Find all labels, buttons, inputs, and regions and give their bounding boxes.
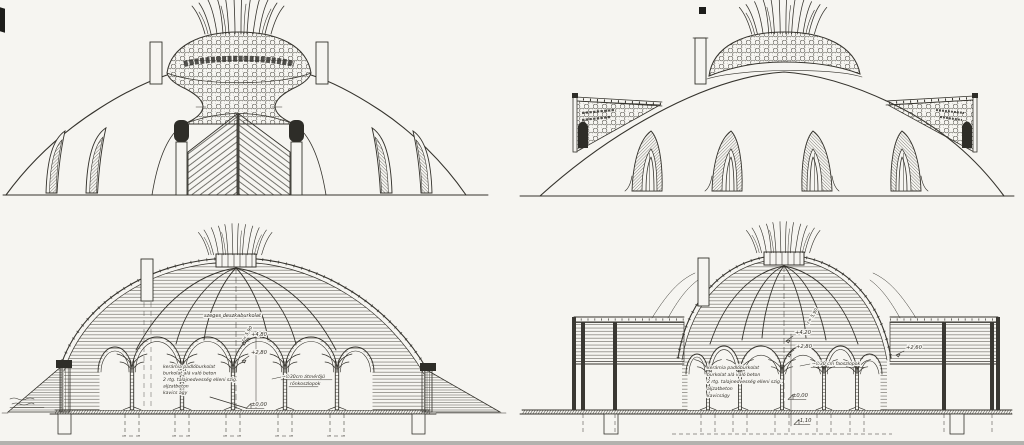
wing-post bbox=[572, 317, 576, 410]
gate-chevron-left bbox=[188, 114, 237, 195]
slope-embankment-right bbox=[425, 369, 500, 412]
svg-text:2 rtg. talajnedvesség elleni s: 2 rtg. talajnedvesség elleni szig. bbox=[163, 376, 237, 383]
wing-post bbox=[990, 322, 994, 410]
foundations bbox=[583, 414, 992, 434]
svg-text:burkolat alá való beton: burkolat alá való beton bbox=[163, 370, 216, 377]
level-label: +2,80 bbox=[251, 350, 268, 356]
svg-text:rönkoszlopok: rönkoszlopok bbox=[290, 381, 321, 387]
foundation-pier bbox=[412, 414, 425, 434]
gable-door bbox=[578, 122, 588, 149]
wing-post bbox=[996, 317, 1000, 410]
scan-speck bbox=[699, 7, 706, 14]
wing-post bbox=[613, 322, 617, 410]
dormer-window bbox=[891, 131, 928, 191]
eye-window bbox=[413, 131, 432, 193]
gate-post-right bbox=[291, 142, 302, 195]
svg-text:kavicságy: kavicságy bbox=[707, 392, 730, 399]
svg-text:aljzatbeton: aljzatbeton bbox=[707, 386, 733, 392]
dormer-window bbox=[802, 131, 839, 191]
gate-post-capital-left bbox=[174, 120, 189, 142]
level-label: +4,20 bbox=[795, 330, 812, 336]
chimney bbox=[141, 259, 153, 301]
scan-speck bbox=[0, 7, 5, 33]
gable-post bbox=[973, 95, 977, 152]
level-label: +4,80 bbox=[251, 332, 268, 338]
level-label: ±0,00 bbox=[792, 393, 809, 399]
panel-longitudinal-section: r= 5,90 +4,20 +2,80 +2,60 ±0,00 -1,10 ke… bbox=[512, 222, 1024, 445]
foundation-pier bbox=[604, 414, 618, 434]
architectural-drawing-sheet: szeges deszkaburkolat r= 5,90 +4,80 +2,8… bbox=[0, 0, 1024, 445]
dormer-windows bbox=[625, 131, 928, 191]
mound-outline bbox=[540, 72, 1004, 196]
panel-side-elevation bbox=[512, 0, 1024, 215]
wing-post bbox=[581, 322, 585, 410]
eave-wall-right bbox=[422, 369, 432, 412]
gate-post-left bbox=[176, 142, 187, 195]
level-label: +2,60 bbox=[906, 345, 923, 351]
svg-text:burkolat alá való beton: burkolat alá való beton bbox=[707, 371, 760, 378]
roof-post-right bbox=[316, 42, 328, 84]
foundations bbox=[58, 414, 425, 436]
chimney bbox=[695, 38, 706, 84]
svg-text:aljzatbeton: aljzatbeton bbox=[163, 384, 189, 390]
crown-finial-tendrils bbox=[739, 0, 826, 34]
gable-door bbox=[962, 122, 972, 149]
level-label: +2,80 bbox=[796, 344, 813, 350]
foundation-dashed bbox=[122, 414, 347, 436]
svg-text:kerámia padlóburkolat: kerámia padlóburkolat bbox=[163, 363, 215, 370]
crown-finial-tendrils bbox=[192, 0, 284, 34]
scan-edge-band bbox=[0, 441, 1024, 445]
panel-front-elevation bbox=[0, 0, 500, 212]
svg-text:~∅30cm átmérőjű: ~∅30cm átmérőjű bbox=[282, 373, 325, 380]
gable-post bbox=[573, 95, 577, 152]
wing-right bbox=[890, 317, 1000, 410]
level-label: -1,10 bbox=[798, 418, 812, 424]
crown-finial-tendrils bbox=[746, 222, 820, 253]
eave-block-left bbox=[56, 360, 72, 368]
foundation-pier bbox=[950, 414, 964, 434]
wing-post bbox=[942, 322, 946, 410]
scaled-dome-and-neck bbox=[167, 32, 311, 124]
svg-text:kerámia padlóburkolat: kerámia padlóburkolat bbox=[707, 364, 759, 371]
foundation-dashed bbox=[583, 414, 992, 434]
floor-slab bbox=[520, 410, 1012, 414]
cladding-note: szeges deszkaburkolat bbox=[204, 313, 262, 319]
roof-post-left bbox=[150, 42, 162, 84]
eye-window bbox=[46, 131, 65, 193]
panel-cross-section: szeges deszkaburkolat r= 5,90 +4,80 +2,8… bbox=[0, 222, 512, 445]
svg-text:kavics ágy: kavics ágy bbox=[163, 389, 188, 396]
slope-embankment-left bbox=[8, 366, 62, 412]
eave-wall-left bbox=[60, 366, 70, 412]
eye-window bbox=[372, 128, 392, 193]
dormer-window bbox=[705, 131, 742, 191]
gate-post-capital-right bbox=[289, 120, 304, 142]
foundation-pier bbox=[58, 414, 71, 434]
entrance-gate bbox=[174, 114, 304, 196]
eye-window bbox=[86, 128, 106, 193]
svg-text:2 rtg. talajnedvesség elleni s: 2 rtg. talajnedvesség elleni szig. bbox=[707, 378, 781, 385]
svg-text:~∅30 cm faoszlopok: ~∅30 cm faoszlopok bbox=[812, 361, 860, 367]
dormer-window bbox=[625, 131, 662, 191]
gate-chevron-right bbox=[239, 114, 290, 195]
chimney bbox=[698, 258, 709, 306]
eave-block-right bbox=[420, 363, 436, 371]
crown-finial-tendrils bbox=[198, 224, 272, 255]
wing-left bbox=[572, 317, 684, 410]
level-label: ±0,00 bbox=[251, 402, 268, 408]
